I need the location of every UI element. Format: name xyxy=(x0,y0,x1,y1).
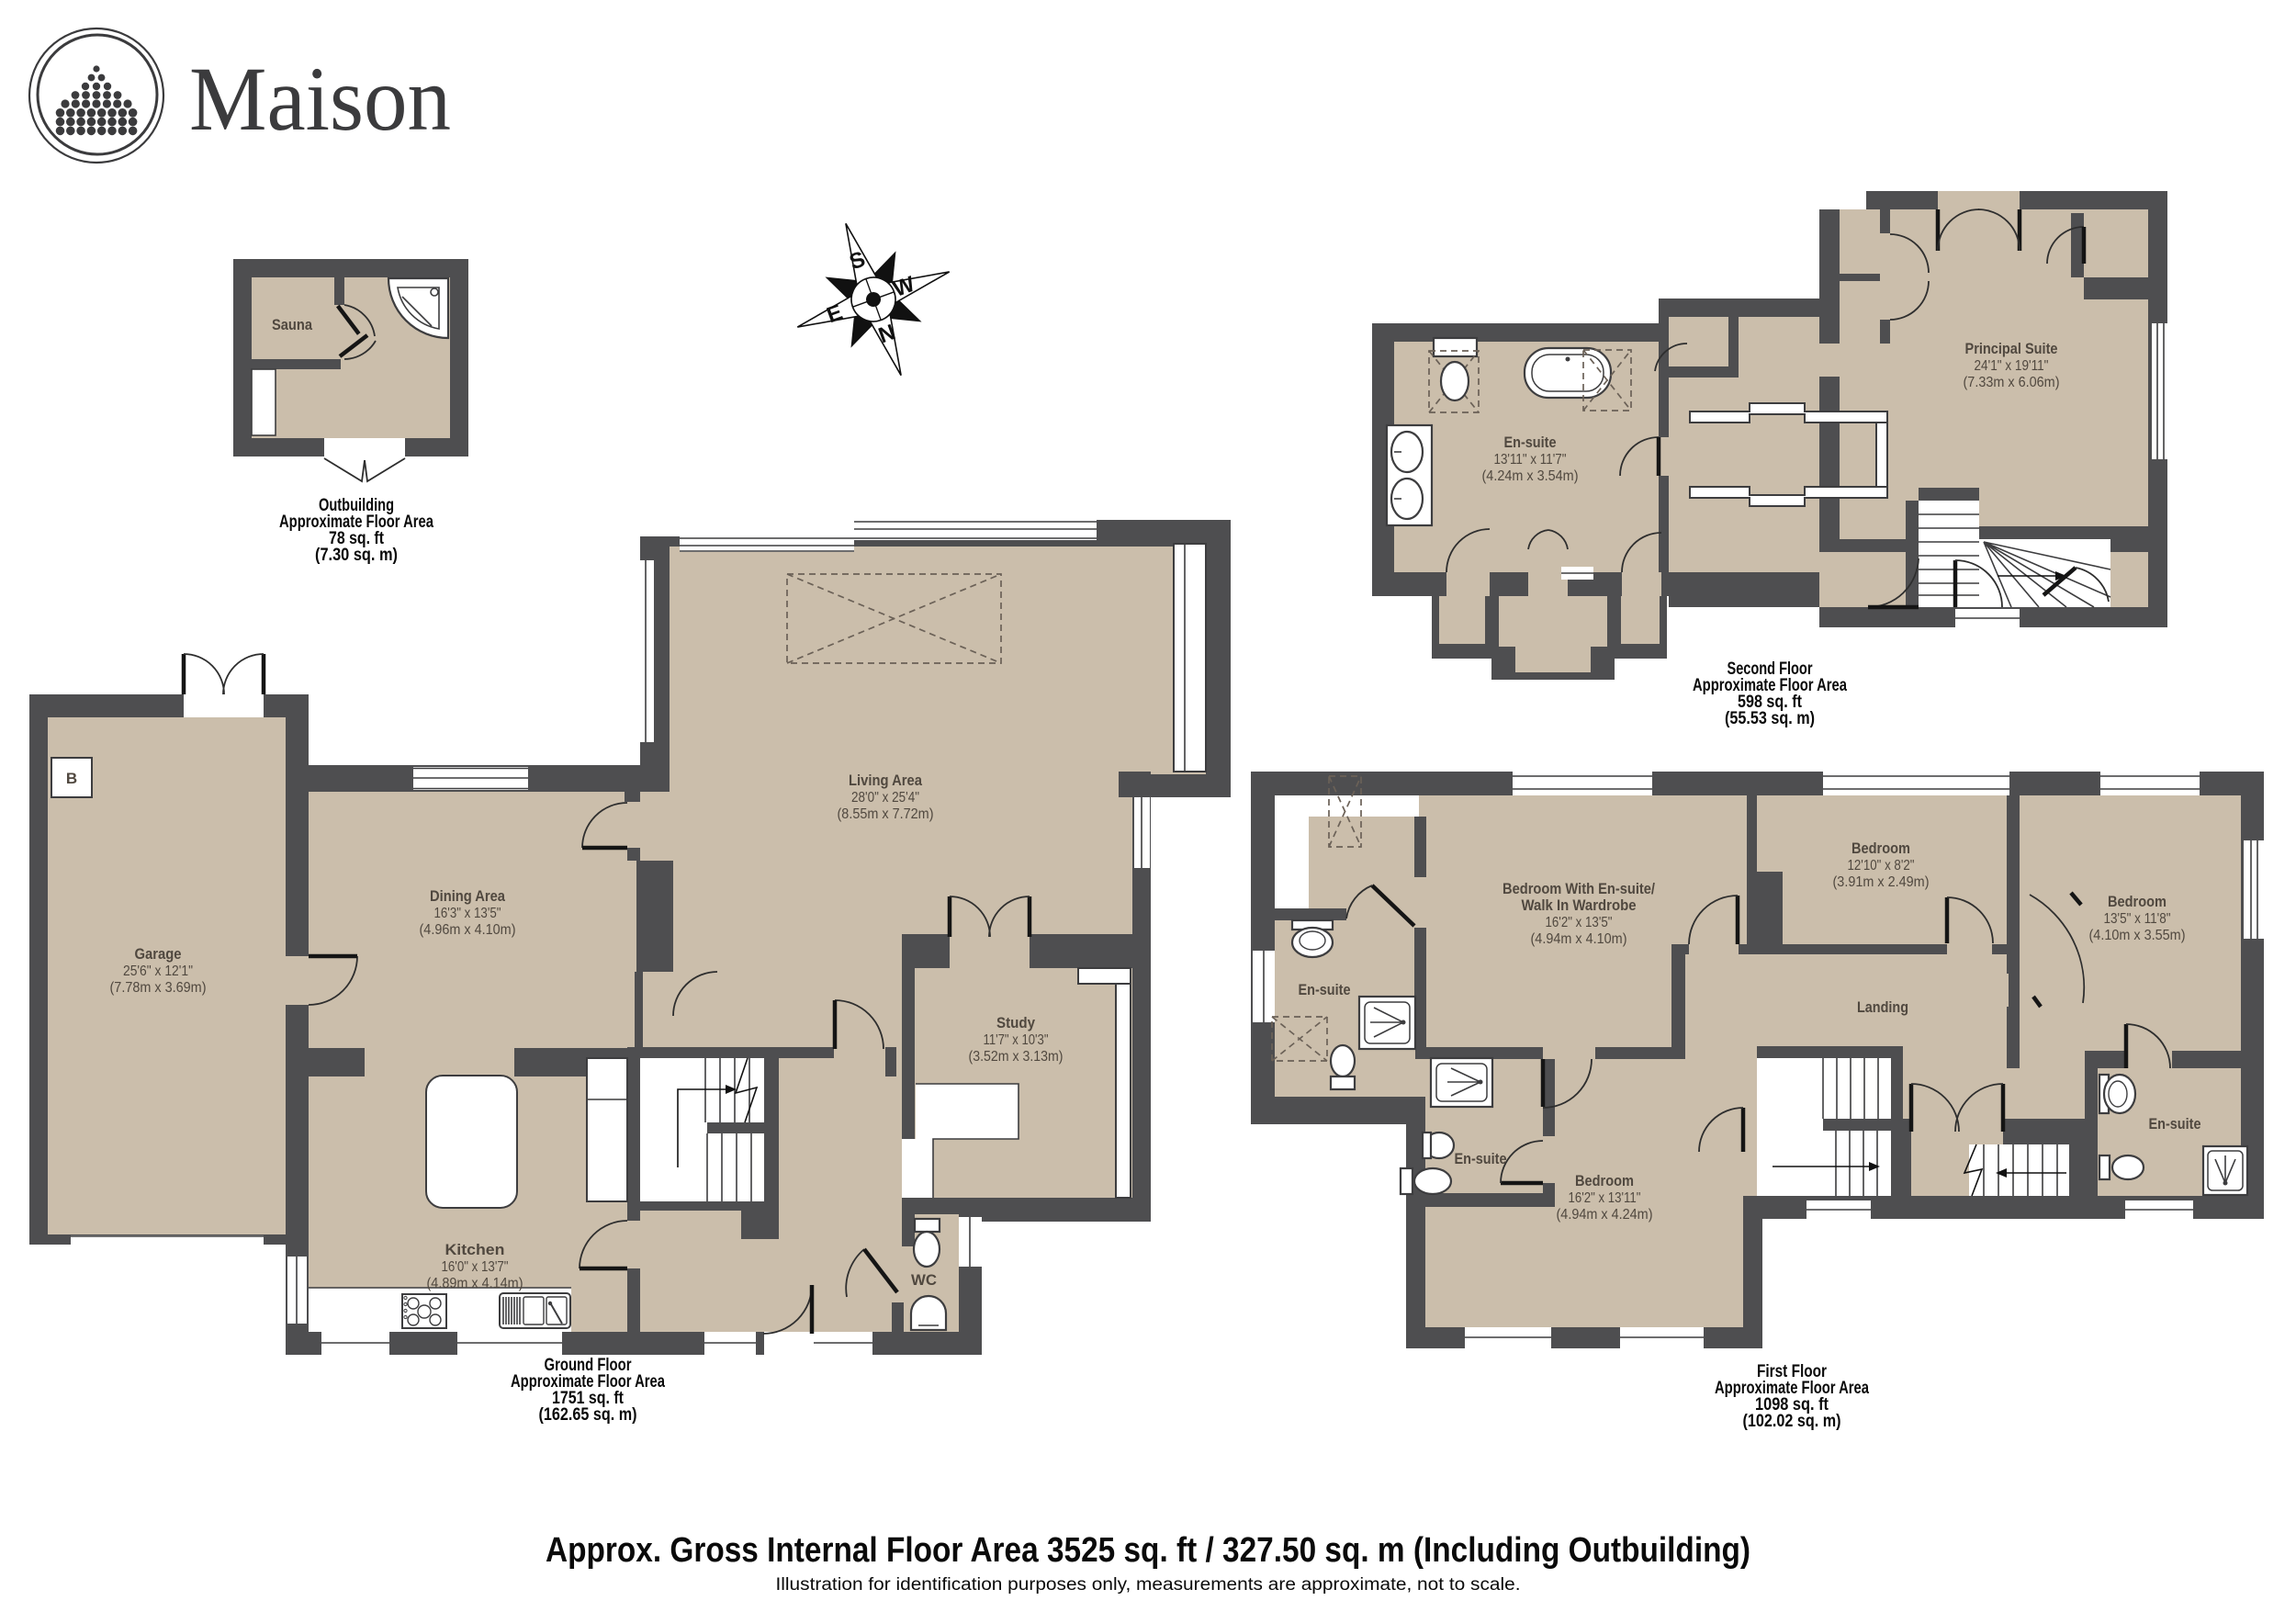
svg-text:En-suite: En-suite xyxy=(1455,1150,1507,1167)
svg-text:(7.33m x 6.06m): (7.33m x 6.06m) xyxy=(1964,375,2060,390)
svg-text:(102.02 sq. m): (102.02 sq. m) xyxy=(1743,1412,1841,1431)
svg-text:13'5" x 11'8": 13'5" x 11'8" xyxy=(2104,911,2171,927)
svg-text:WC: WC xyxy=(911,1271,937,1289)
svg-text:Walk In Wardrobe: Walk In Wardrobe xyxy=(1522,896,1637,914)
svg-text:Landing: Landing xyxy=(1857,998,1908,1016)
svg-text:12'10" x 8'2": 12'10" x 8'2" xyxy=(1848,858,1915,873)
svg-text:(7.78m x 3.69m): (7.78m x 3.69m) xyxy=(110,980,207,996)
svg-text:(55.53 sq. m): (55.53 sq. m) xyxy=(1725,709,1815,728)
svg-text:Illustration for identificatio: Illustration for identification purposes… xyxy=(776,1575,1521,1595)
svg-text:16'2" x 13'11": 16'2" x 13'11" xyxy=(1569,1190,1641,1206)
svg-text:(4.94m x 4.24m): (4.94m x 4.24m) xyxy=(1557,1207,1653,1223)
svg-text:Maison: Maison xyxy=(189,48,451,150)
svg-text:Principal Suite: Principal Suite xyxy=(1965,340,2058,357)
svg-text:Living Area: Living Area xyxy=(849,772,922,789)
svg-text:Garage: Garage xyxy=(135,945,182,963)
svg-text:(4.24m x 3.54m): (4.24m x 3.54m) xyxy=(1482,468,1579,484)
svg-text:En-suite: En-suite xyxy=(1299,981,1351,998)
svg-text:(3.52m x 3.13m): (3.52m x 3.13m) xyxy=(969,1049,1064,1065)
svg-text:(4.96m x 4.10m): (4.96m x 4.10m) xyxy=(420,922,516,938)
svg-text:24'1" x 19'11": 24'1" x 19'11" xyxy=(1975,358,2049,374)
svg-text:(8.55m x 7.72m): (8.55m x 7.72m) xyxy=(838,806,934,822)
svg-text:16'2" x 13'5": 16'2" x 13'5" xyxy=(1546,915,1613,930)
svg-text:16'3" x 13'5": 16'3" x 13'5" xyxy=(434,906,501,921)
svg-text:11'7" x 10'3": 11'7" x 10'3" xyxy=(984,1032,1049,1048)
svg-text:(7.30 sq. m): (7.30 sq. m) xyxy=(315,546,398,565)
svg-text:Kitchen: Kitchen xyxy=(445,1241,505,1258)
svg-text:(3.91m x 2.49m): (3.91m x 2.49m) xyxy=(1833,874,1930,890)
svg-text:B: B xyxy=(66,770,77,787)
svg-text:Study: Study xyxy=(996,1014,1035,1031)
svg-text:16'0" x 13'7": 16'0" x 13'7" xyxy=(442,1259,509,1275)
svg-text:Sauna: Sauna xyxy=(272,316,312,333)
svg-text:Bedroom: Bedroom xyxy=(2108,893,2167,910)
svg-text:(162.65 sq. m): (162.65 sq. m) xyxy=(539,1405,637,1425)
svg-text:(4.10m x 3.55m): (4.10m x 3.55m) xyxy=(2089,928,2186,943)
svg-text:En-suite: En-suite xyxy=(2149,1115,2201,1133)
svg-text:Bedroom: Bedroom xyxy=(1851,840,1910,857)
svg-text:Dining Area: Dining Area xyxy=(430,887,505,905)
svg-text:(4.89m x 4.14m): (4.89m x 4.14m) xyxy=(427,1276,523,1291)
svg-text:(4.94m x 4.10m): (4.94m x 4.10m) xyxy=(1531,931,1627,947)
svg-text:Bedroom With En-suite/: Bedroom With En-suite/ xyxy=(1503,880,1655,897)
svg-text:Bedroom: Bedroom xyxy=(1575,1172,1634,1189)
svg-text:En-suite: En-suite xyxy=(1504,434,1557,451)
svg-text:28'0" x 25'4": 28'0" x 25'4" xyxy=(851,790,919,806)
svg-text:25'6" x 12'1": 25'6" x 12'1" xyxy=(123,964,193,979)
svg-text:13'11" x 11'7": 13'11" x 11'7" xyxy=(1494,452,1567,468)
svg-text:Approx. Gross Internal Floor A: Approx. Gross Internal Floor Area 3525 s… xyxy=(546,1531,1750,1570)
